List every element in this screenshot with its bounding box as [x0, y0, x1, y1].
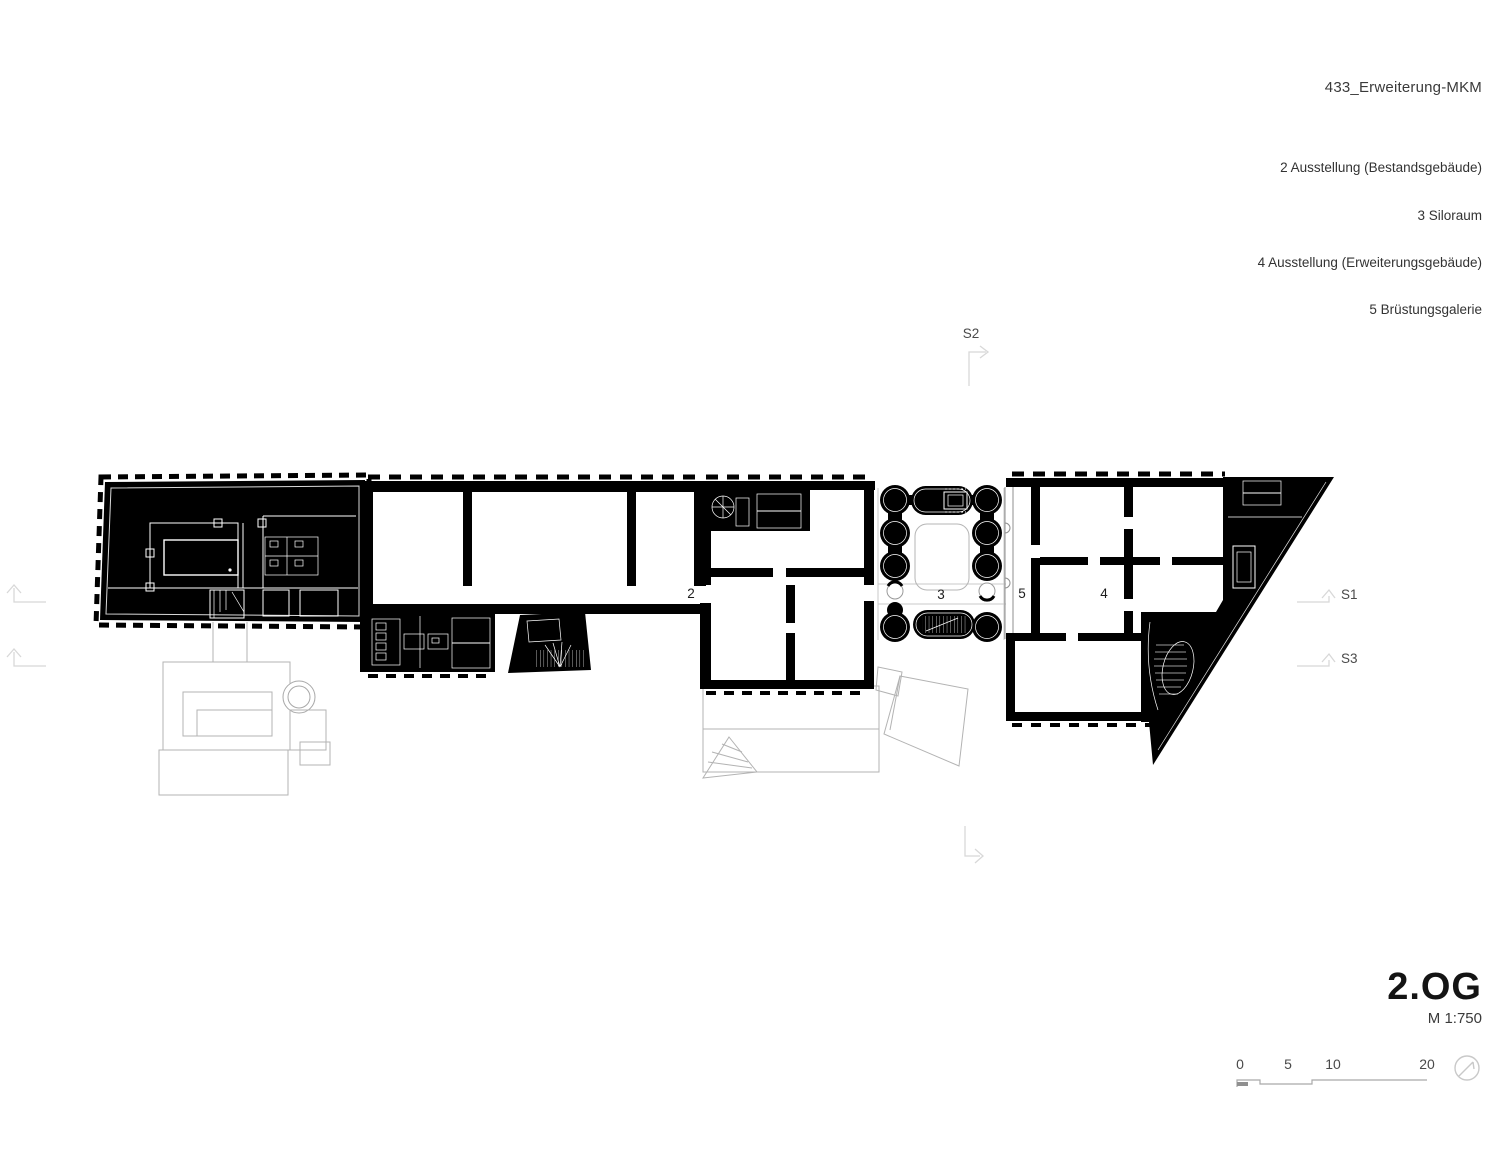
section-marker-s1: S1	[1297, 587, 1358, 602]
section-marker-s3: S3	[1297, 651, 1358, 666]
section-marker-s2-top: S2	[963, 326, 988, 386]
section-label-s1: S1	[1341, 587, 1358, 602]
building-existing-east	[700, 477, 875, 693]
building-existing-west	[96, 475, 369, 627]
scale-tick-5: 5	[1284, 1056, 1292, 1072]
section-label-s3: S3	[1341, 651, 1358, 666]
scale-tick-10: 10	[1325, 1056, 1341, 1072]
roof-plan-left	[159, 622, 330, 795]
scale-tick-20: 20	[1419, 1056, 1435, 1072]
section-label-s2: S2	[963, 326, 980, 341]
section-marker-s2-bottom	[965, 826, 983, 863]
building-triangle	[1141, 477, 1334, 765]
floor-plan-drawing: 2 3 4 5 S2 S1 S3 0 5 10 20	[0, 0, 1512, 1159]
room-label-4: 4	[1100, 586, 1108, 601]
silo-section	[878, 485, 1006, 642]
room-label-5: 5	[1018, 586, 1026, 601]
scale-tick-0: 0	[1236, 1056, 1244, 1072]
section-marker-left-upper	[7, 585, 46, 602]
section-marker-left-lower	[7, 649, 46, 666]
room-label-3: 3	[937, 587, 945, 602]
scale-bar: 0 5 10 20	[1236, 1056, 1435, 1087]
building-existing-middle	[360, 477, 706, 676]
north-indicator-icon	[1455, 1056, 1479, 1080]
room-label-2: 2	[687, 586, 695, 601]
